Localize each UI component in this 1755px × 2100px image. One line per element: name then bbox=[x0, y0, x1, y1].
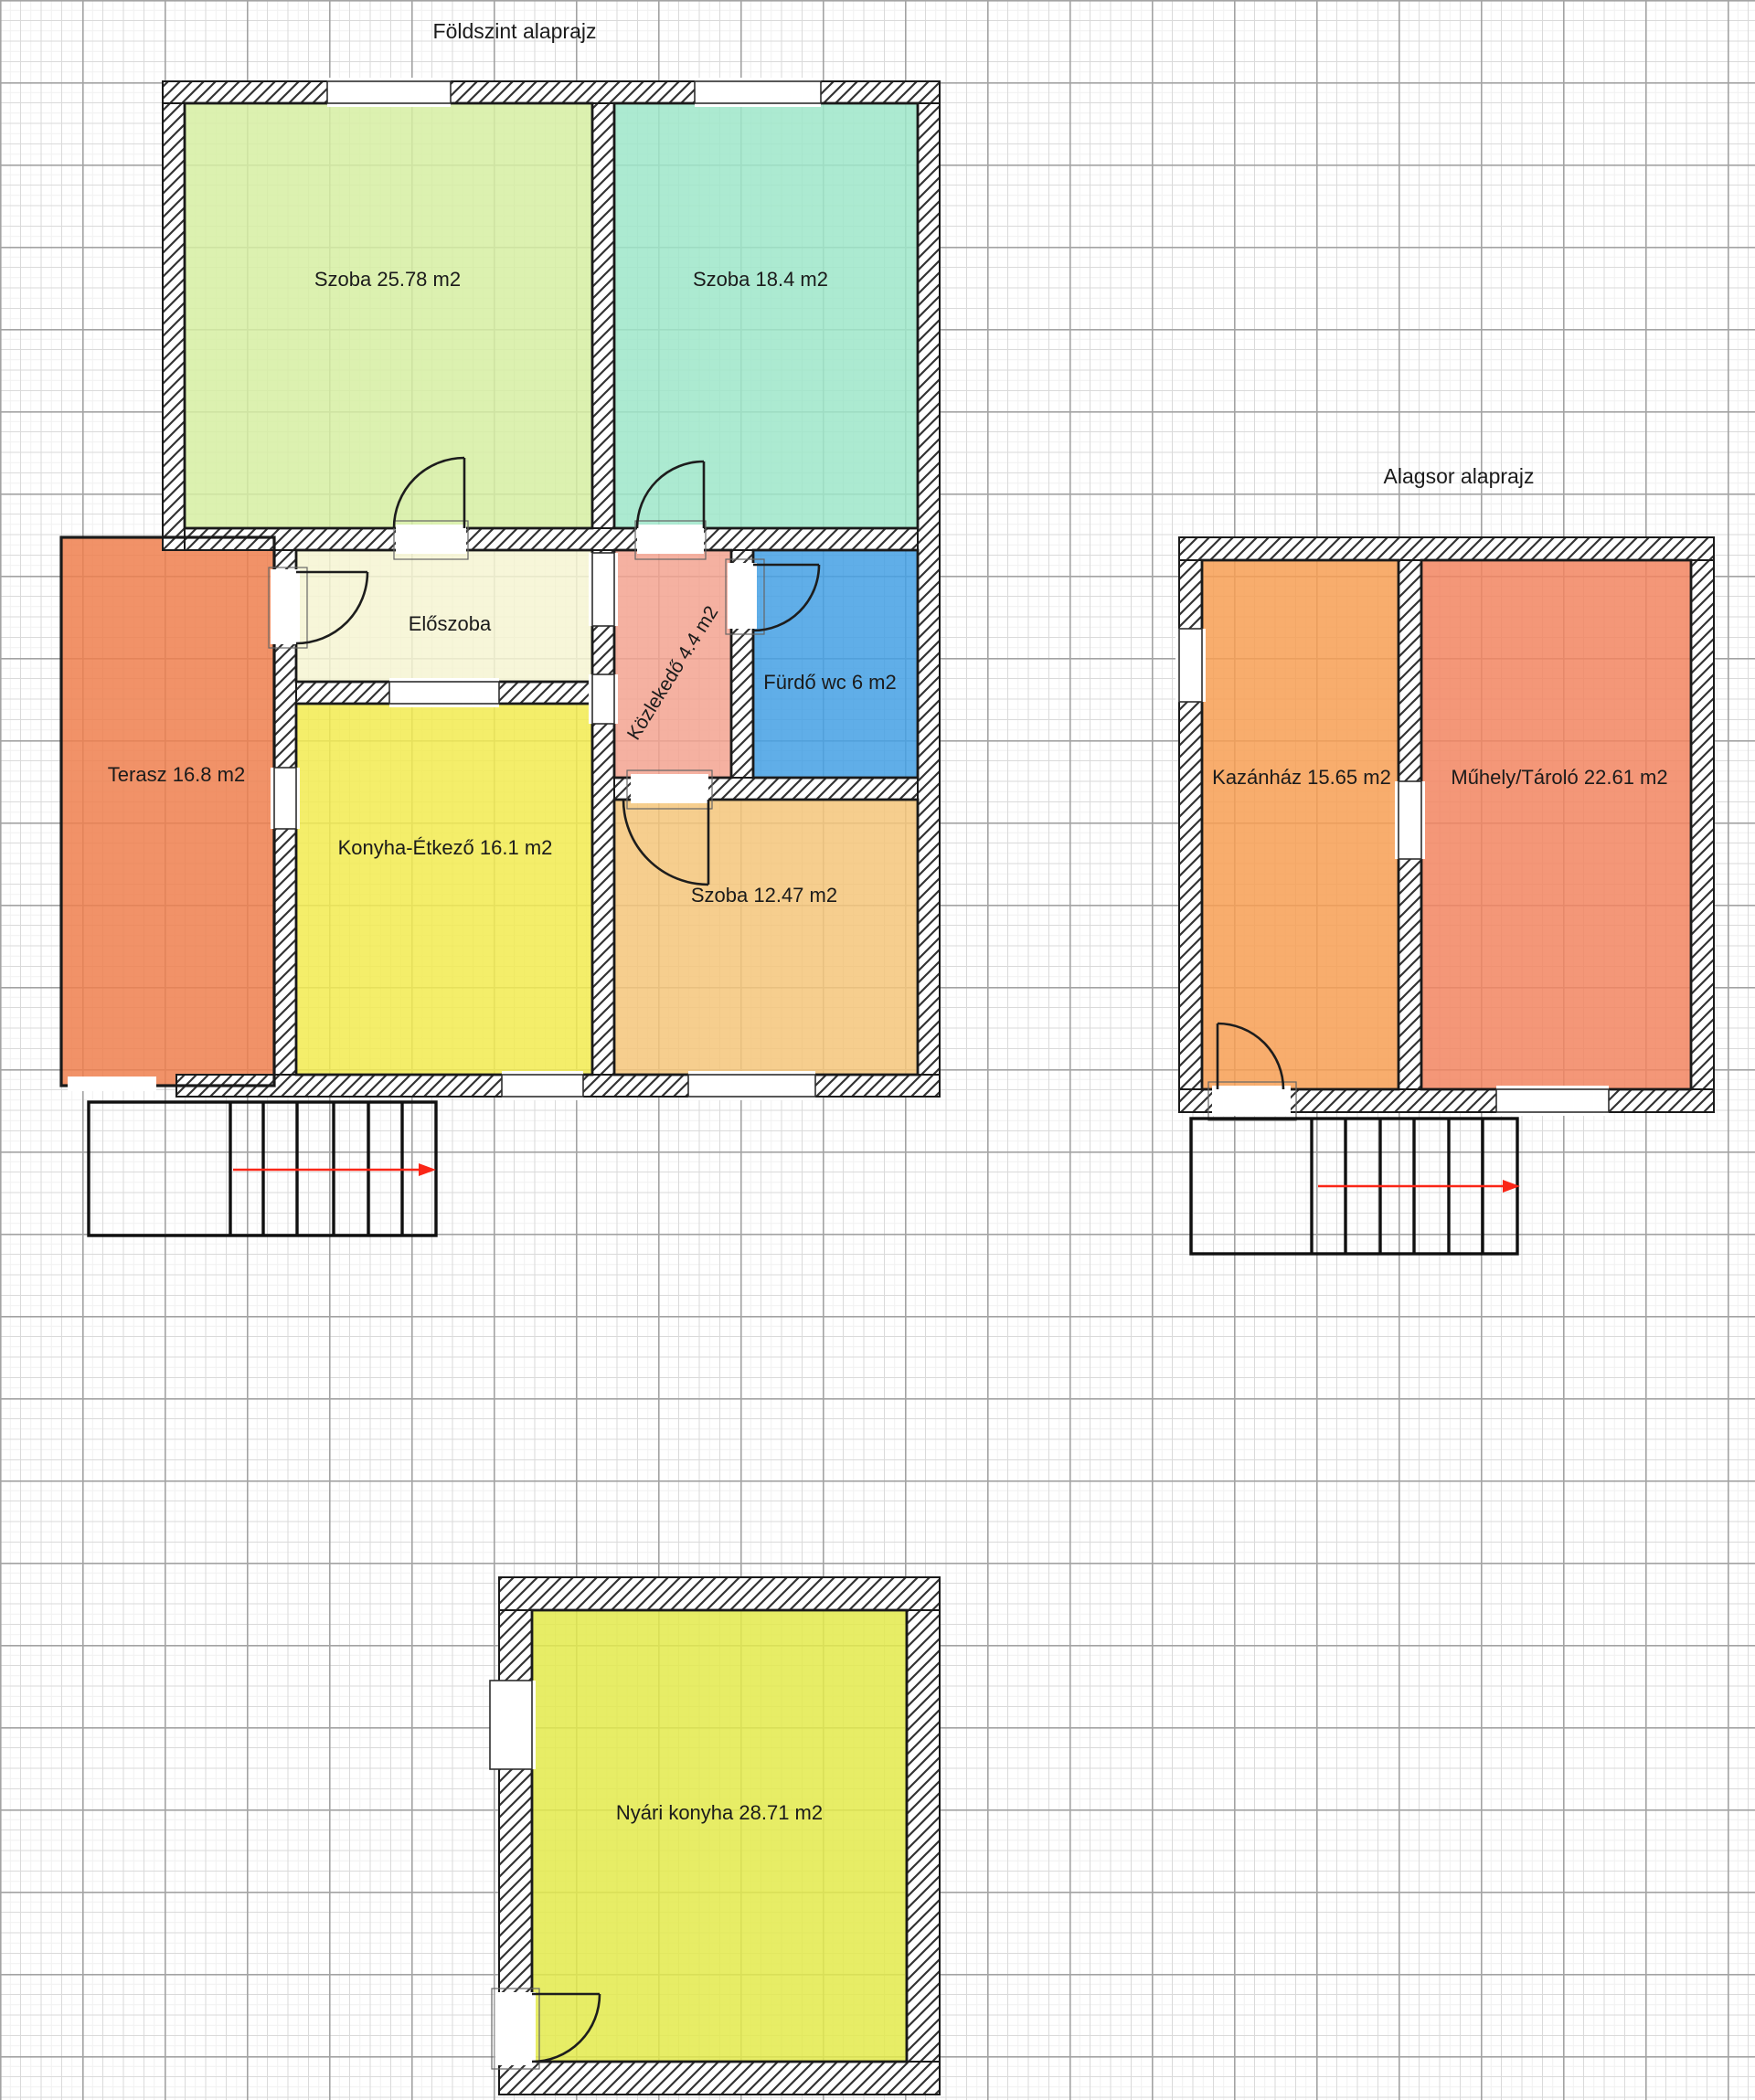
doorway-furdo-gap bbox=[728, 563, 757, 629]
room-label-szoba-3: Szoba 12.47 m2 bbox=[691, 884, 837, 907]
doorway-kazanhaz-gap bbox=[1212, 1086, 1291, 1116]
room-szoba-1 bbox=[185, 103, 592, 528]
passage-konyha-kozlekedo bbox=[592, 674, 614, 724]
passage-eloszoba-konyha bbox=[389, 682, 499, 704]
room-label-nyari-konyha: Nyári konyha 28.71 m2 bbox=[616, 1801, 823, 1824]
room-terasz bbox=[61, 537, 274, 1086]
wall-segment bbox=[1179, 537, 1714, 560]
wall-segment bbox=[499, 1577, 940, 1610]
window-konyha-bottom bbox=[502, 1075, 583, 1097]
wall-segment bbox=[918, 103, 940, 1075]
room-label-muhely: Műhely/Tároló 22.61 m2 bbox=[1451, 766, 1667, 789]
passage-eloszoba-kozlekedo bbox=[592, 553, 614, 626]
room-szoba-3 bbox=[614, 800, 918, 1075]
room-kazanhaz bbox=[1202, 560, 1399, 1089]
passage-kazanhaz-muhely bbox=[1399, 781, 1421, 859]
doorway-szoba1-gap bbox=[396, 525, 466, 554]
window-nyari-left bbox=[490, 1681, 532, 1769]
window-szoba3-bottom bbox=[688, 1075, 815, 1097]
room-szoba-2 bbox=[614, 103, 918, 528]
doorway-nyari-gap bbox=[495, 1992, 536, 2065]
doorway-terasz-stairs-gap bbox=[68, 1077, 156, 1091]
room-label-szoba-2: Szoba 18.4 m2 bbox=[693, 268, 828, 291]
doorway-eloszoba-gap bbox=[271, 569, 300, 644]
window-kazanhaz-left bbox=[1179, 629, 1202, 702]
window-muhely-bottom bbox=[1496, 1089, 1609, 1112]
wall-segment bbox=[163, 81, 940, 103]
wall-segment bbox=[907, 1610, 940, 2062]
floor-plan-drawing: Terasz 16.8 m2Szoba 25.78 m2Szoba 18.4 m… bbox=[0, 0, 1755, 2100]
room-label-eloszoba: Előszoba bbox=[409, 612, 492, 635]
room-label-szoba-1: Szoba 25.78 m2 bbox=[314, 268, 461, 291]
doorway-szoba3-gap bbox=[631, 774, 708, 803]
ground-floor-title: Földszint alaprajz bbox=[433, 19, 597, 43]
doorway-szoba2-gap bbox=[637, 525, 704, 554]
room-muhely bbox=[1421, 560, 1691, 1089]
room-label-konyha: Konyha-Étkező 16.1 m2 bbox=[338, 836, 553, 859]
wall-segment bbox=[185, 528, 918, 550]
window-terasz-konyha bbox=[274, 768, 296, 829]
wall-segment bbox=[592, 103, 614, 528]
room-label-terasz: Terasz 16.8 m2 bbox=[108, 763, 245, 786]
wall-segment bbox=[163, 103, 185, 550]
room-konyha bbox=[296, 704, 592, 1075]
room-label-furdo: Fürdő wc 6 m2 bbox=[763, 671, 897, 694]
window-szoba2-top bbox=[695, 81, 821, 103]
room-label-kazanhaz: Kazánház 15.65 m2 bbox=[1212, 766, 1391, 789]
wall-segment bbox=[592, 550, 614, 1075]
window-szoba1-top bbox=[327, 81, 451, 103]
basement-title: Alagsor alaprajz bbox=[1384, 464, 1535, 488]
floor-plan-page: Terasz 16.8 m2Szoba 25.78 m2Szoba 18.4 m… bbox=[0, 0, 1755, 2100]
room-furdo bbox=[753, 550, 918, 778]
wall-segment bbox=[1691, 560, 1714, 1089]
wall-segment bbox=[499, 2062, 940, 2095]
